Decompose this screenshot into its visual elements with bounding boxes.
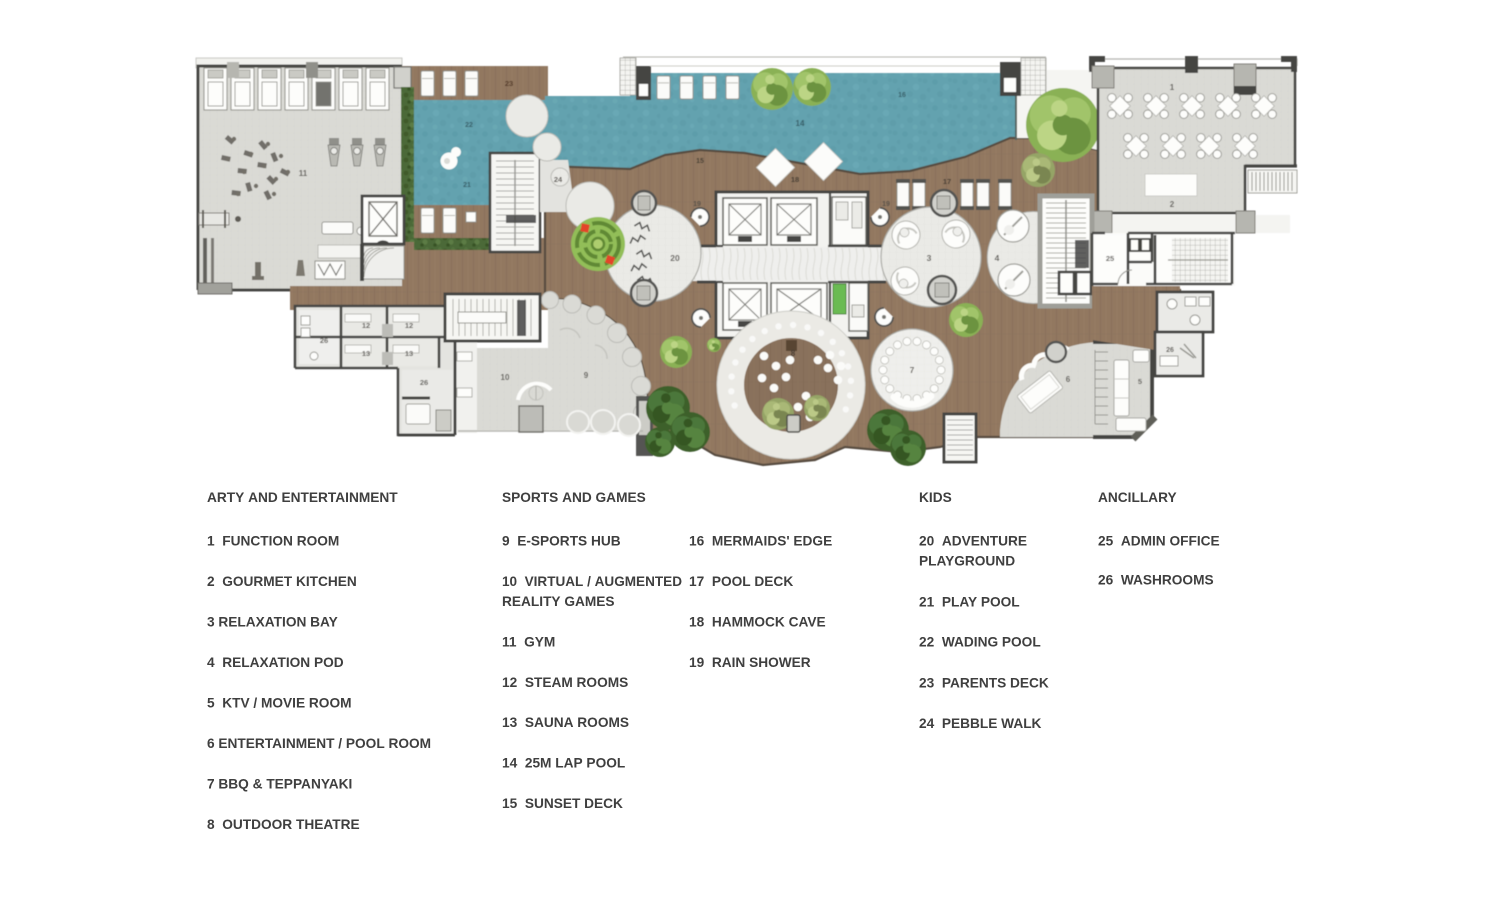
svg-text:REALITY GAMES: REALITY GAMES <box>502 594 615 609</box>
svg-text:5 KTV / MOVIE ROOM: 5 KTV / MOVIE ROOM <box>207 696 352 711</box>
svg-text:17 POOL DECK: 17 POOL DECK <box>689 574 793 589</box>
svg-text:1 FUNCTION ROOM: 1 FUNCTION ROOM <box>207 534 339 549</box>
svg-text:PLAYGROUND: PLAYGROUND <box>919 554 1015 569</box>
svg-text:13 SAUNA ROOMS: 13 SAUNA ROOMS <box>502 715 629 730</box>
svg-text:8 OUTDOOR THEATRE: 8 OUTDOOR THEATRE <box>207 817 360 832</box>
svg-text:KIDS: KIDS <box>919 490 952 505</box>
svg-text:7 BBQ & TEPPANYAKI: 7 BBQ & TEPPANYAKI <box>207 777 352 792</box>
svg-text:12 STEAM ROOMS: 12 STEAM ROOMS <box>502 675 628 690</box>
svg-text:15 SUNSET DECK: 15 SUNSET DECK <box>502 796 623 811</box>
svg-text:11 GYM: 11 GYM <box>502 635 555 650</box>
svg-text:18 HAMMOCK CAVE: 18 HAMMOCK CAVE <box>689 615 826 630</box>
svg-text:19 RAIN SHOWER: 19 RAIN SHOWER <box>689 655 811 670</box>
svg-text:21 PLAY POOL: 21 PLAY POOL <box>919 595 1020 610</box>
svg-text:9 E-SPORTS HUB: 9 E-SPORTS HUB <box>502 534 621 549</box>
svg-text:20 ADVENTURE: 20 ADVENTURE <box>919 534 1027 549</box>
svg-text:24 PEBBLE WALK: 24 PEBBLE WALK <box>919 716 1042 731</box>
svg-text:2 GOURMET KITCHEN: 2 GOURMET KITCHEN <box>207 574 357 589</box>
svg-text:6 ENTERTAINMENT / POOL ROOM: 6 ENTERTAINMENT / POOL ROOM <box>207 736 431 751</box>
svg-text:3 RELAXATION BAY: 3 RELAXATION BAY <box>207 615 338 630</box>
svg-text:ARTY AND ENTERTAINMENT: ARTY AND ENTERTAINMENT <box>207 490 398 505</box>
svg-text:23 PARENTS DECK: 23 PARENTS DECK <box>919 676 1049 691</box>
svg-text:14 25M LAP POOL: 14 25M LAP POOL <box>502 756 625 771</box>
svg-text:10 VIRTUAL / AUGMENTED: 10 VIRTUAL / AUGMENTED <box>502 574 682 589</box>
svg-text:26 WASHROOMS: 26 WASHROOMS <box>1098 573 1214 588</box>
svg-text:ANCILLARY: ANCILLARY <box>1098 490 1177 505</box>
svg-text:16 MERMAIDS' EDGE: 16 MERMAIDS' EDGE <box>689 534 832 549</box>
svg-text:4 RELAXATION POD: 4 RELAXATION POD <box>207 655 344 670</box>
svg-text:SPORTS AND GAMES: SPORTS AND GAMES <box>502 490 646 505</box>
svg-text:25 ADMIN OFFICE: 25 ADMIN OFFICE <box>1098 534 1220 549</box>
svg-text:22 WADING POOL: 22 WADING POOL <box>919 635 1041 650</box>
